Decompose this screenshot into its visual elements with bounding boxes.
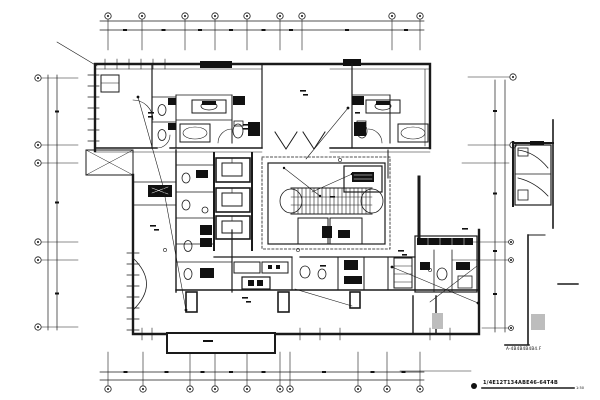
drawing-title-text: 1/4E12T134ABE46-64T4B [483,380,558,386]
plan-note-text: A-4B4B4B4B4.F [506,346,542,351]
floor-plan-canvas: A-4B4B4B4B4.F 1/4E12T134ABE46-64T4B 1:50 [0,0,600,400]
drawing-scale-text: 1:50 [576,386,585,390]
